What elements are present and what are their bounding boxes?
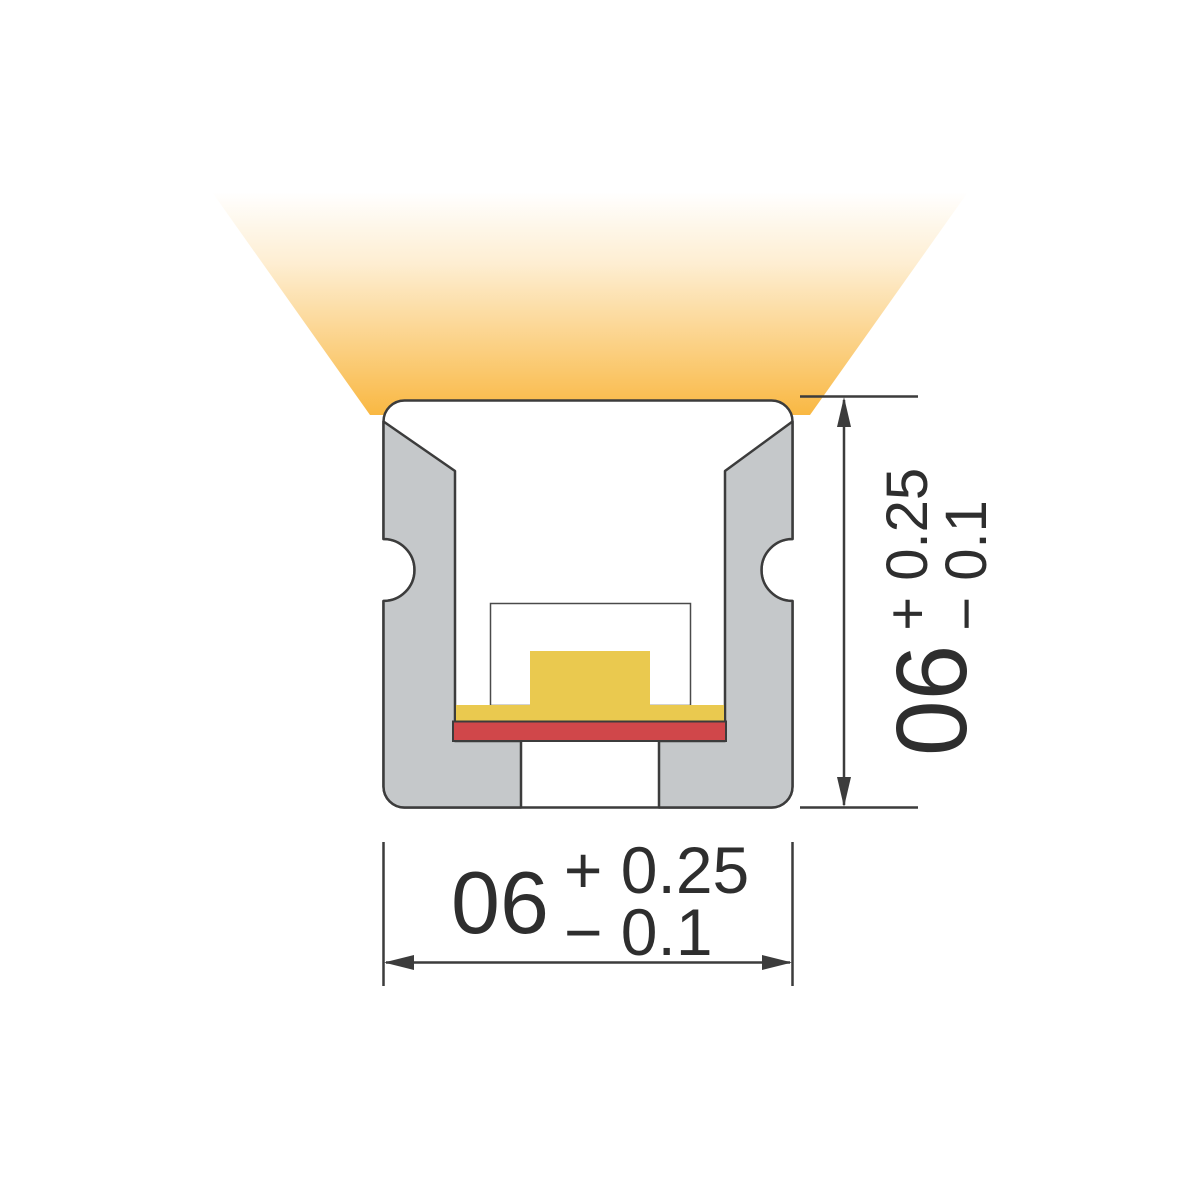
width-tolerance-lower: − 0.1 <box>564 901 749 963</box>
cross-section-drawing <box>0 0 1200 1200</box>
height-dim-arrow-down <box>837 777 851 807</box>
height-dimension-value: 06 <box>882 645 982 756</box>
width-dimension-label: 06 + 0.25 − 0.1 <box>451 839 749 963</box>
height-tolerance-upper: + 0.25 <box>878 468 937 631</box>
height-dimension-label: 06 + 0.25 − 0.1 <box>878 466 984 756</box>
width-dim-arrow-right <box>762 955 792 970</box>
height-dim-arrow-up <box>837 397 851 427</box>
pcb-strip <box>453 722 726 742</box>
light-beam <box>212 192 968 415</box>
led-chip <box>530 651 650 706</box>
height-dimension-tolerances: + 0.25 − 0.1 <box>878 468 996 631</box>
width-dim-arrow-left <box>384 955 414 970</box>
led-profile-technical-drawing: 06 + 0.25 − 0.1 06 + 0.25 − 0.1 <box>0 0 1200 1200</box>
width-tolerance-upper: + 0.25 <box>564 839 749 901</box>
height-tolerance-lower: − 0.1 <box>937 468 996 631</box>
width-dimension-value: 06 <box>451 859 549 947</box>
width-dimension-tolerances: + 0.25 − 0.1 <box>564 839 749 963</box>
led-strip-layer <box>456 705 724 722</box>
